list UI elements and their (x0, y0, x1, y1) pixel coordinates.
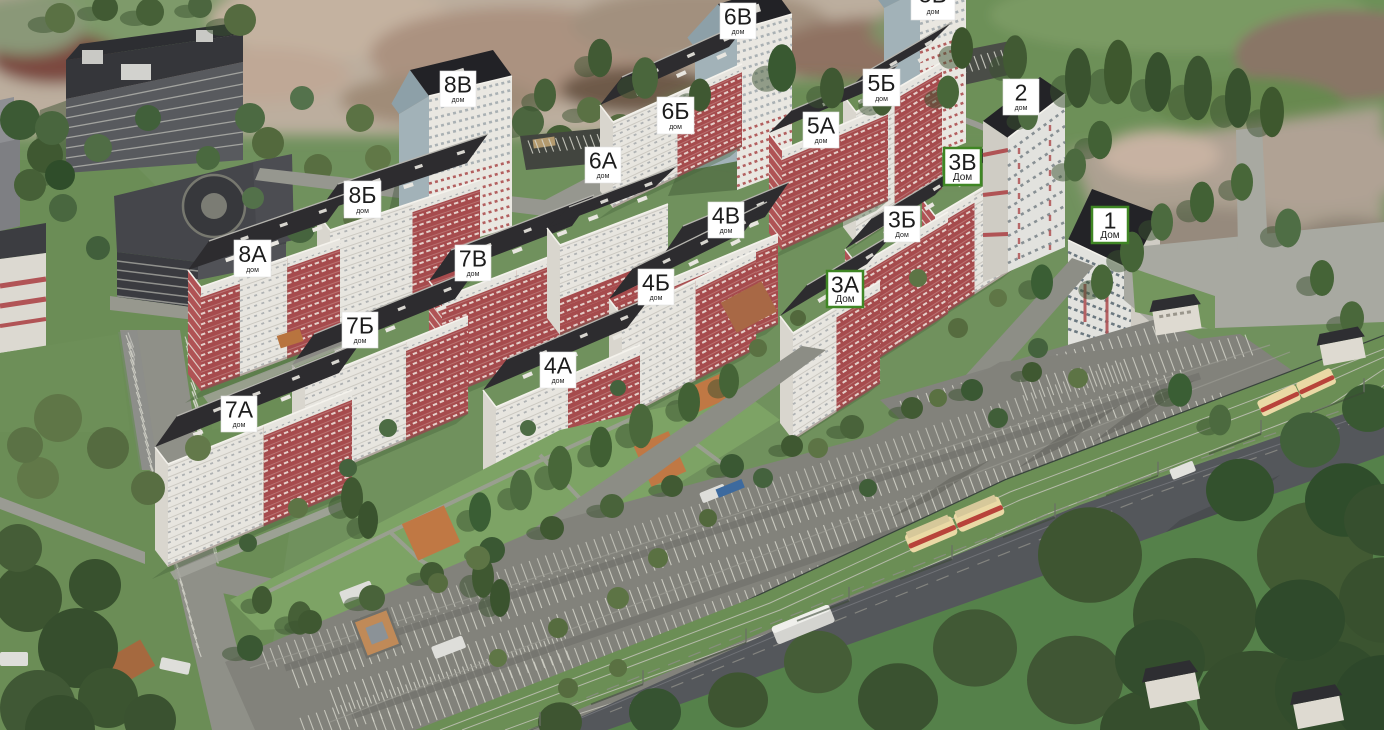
svg-text:дом: дом (467, 271, 480, 278)
svg-text:4В: 4В (712, 203, 740, 229)
svg-text:Дом: Дом (953, 172, 972, 183)
svg-text:6В: 6В (724, 4, 752, 30)
svg-text:дом: дом (815, 138, 828, 145)
svg-text:7Б: 7Б (346, 313, 374, 339)
svg-text:Дом: Дом (895, 232, 909, 239)
svg-text:дом: дом (597, 173, 610, 180)
svg-text:4Б: 4Б (642, 270, 670, 296)
svg-text:дом: дом (233, 422, 246, 429)
svg-text:2: 2 (1015, 80, 1028, 106)
svg-text:7А: 7А (225, 397, 254, 423)
svg-text:дом: дом (732, 29, 745, 36)
svg-text:8В: 8В (444, 72, 472, 98)
svg-text:дом: дом (669, 124, 682, 131)
svg-text:8Б: 8Б (349, 182, 377, 208)
svg-text:дом: дом (1015, 105, 1028, 112)
svg-text:дом: дом (650, 295, 663, 302)
svg-text:6А: 6А (589, 148, 618, 174)
svg-text:дом: дом (927, 9, 940, 16)
svg-text:дом: дом (720, 228, 733, 235)
svg-text:дом: дом (356, 208, 369, 215)
svg-text:дом: дом (354, 338, 367, 345)
svg-text:6Б: 6Б (662, 98, 690, 124)
svg-text:Дом: Дом (1100, 230, 1119, 241)
svg-text:Дом: Дом (835, 294, 854, 305)
svg-text:5В: 5В (919, 0, 947, 7)
svg-text:дом: дом (452, 97, 465, 104)
svg-text:4А: 4А (544, 353, 573, 379)
svg-text:5А: 5А (807, 113, 836, 139)
svg-text:8А: 8А (238, 241, 267, 267)
svg-text:дом: дом (552, 378, 565, 385)
svg-text:7В: 7В (459, 246, 487, 272)
svg-text:дом: дом (246, 267, 259, 274)
svg-text:дом: дом (875, 96, 888, 103)
svg-text:3Б: 3Б (888, 207, 916, 233)
svg-text:5Б: 5Б (868, 70, 896, 96)
